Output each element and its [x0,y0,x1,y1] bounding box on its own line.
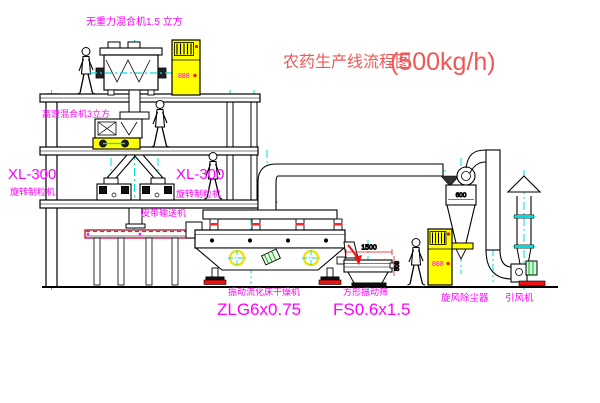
granulator-left-machine [97,178,131,200]
label-draft-fan: 引风机 [505,292,534,304]
cad-flow-diagram: 888 [0,0,600,403]
person-figure-ground [408,239,426,286]
label-granulator-left-model: XL-300 [8,166,56,183]
person-figure-second-floor [152,101,170,148]
label-granulator-left-name: 旋转制粒机 [10,186,55,197]
granulator-right-machine [140,178,174,200]
indicator-light-icon [195,45,198,48]
screen-height-dimension: 500 [395,260,401,271]
draft-fan-machine [511,261,545,286]
indicator-light-icon [447,232,450,235]
screen-length-dimension: 1500 [361,245,377,252]
label-granulator-right-name: 旋转制粒机 [176,188,221,199]
control-cabinet-top: 888 [172,40,200,95]
label-dryer-name: 振动流化床干燥机 [228,286,300,297]
indicator-light-icon [446,262,449,265]
cabinet-display-readout: 888 [432,261,444,268]
fluid-bed-dryer-machine [186,202,359,285]
cyclone-inlet-dimension: 600 [456,192,467,199]
label-screen-model: FS0.6x1.5 [333,300,411,319]
drawing-title: 农药生产线流程图 (500kg/h) [283,48,496,76]
label-belt-conveyor: 皮带输送机 [141,207,186,218]
exhaust-duct [258,164,459,210]
belt-conveyor-machine [85,230,193,285]
label-granulator-right-model: XL-300 [176,166,224,183]
person-figure-top-floor [78,48,96,95]
label-cyclone: 旋风除尘器 [441,292,489,304]
diagram-svg: 888 [0,0,600,403]
label-high-speed-mixer: 高速混合机3立方 [42,108,110,119]
label-dryer-model: ZLG6x0.75 [217,300,301,319]
control-cabinet-ground: 888 [428,229,452,285]
indicator-light-icon [193,74,196,77]
label-screen-name: 方形振动筛 [343,286,388,297]
label-gravity-mixer: 无重力混合机1.5 立方 [86,15,183,28]
title-capacity: (500kg/h) [390,48,496,76]
cabinet-display-readout: 888 [178,73,190,80]
